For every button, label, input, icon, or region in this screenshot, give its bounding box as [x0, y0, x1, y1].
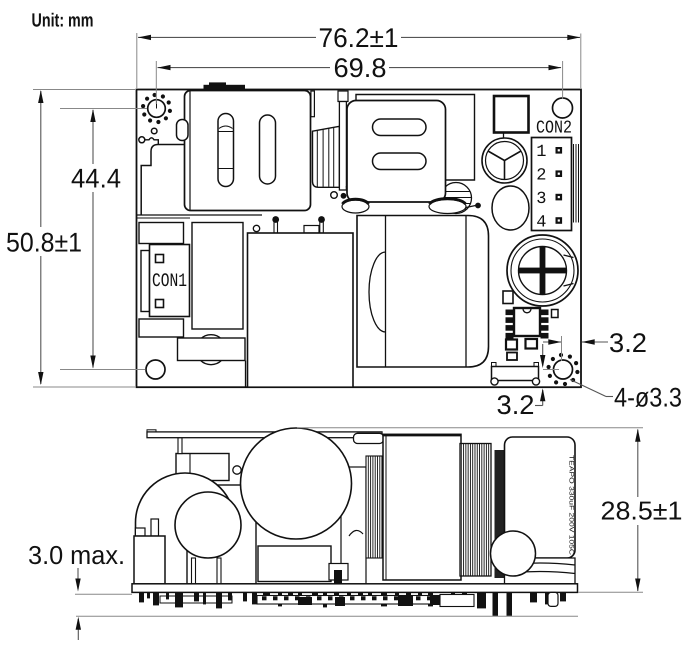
svg-text:3.0 max.: 3.0 max.: [28, 540, 125, 570]
svg-text:50.8±1: 50.8±1: [6, 228, 82, 258]
svg-text:TEAPO 330uF 200V 105C: TEAPO 330uF 200V 105C: [568, 455, 575, 555]
svg-text:2: 2: [536, 167, 546, 186]
svg-text:3.2: 3.2: [609, 328, 647, 358]
svg-text:69.8: 69.8: [334, 53, 387, 83]
svg-text:28.5±1: 28.5±1: [601, 496, 683, 526]
svg-text:1: 1: [536, 143, 546, 162]
svg-text:CON2: CON2: [536, 119, 572, 139]
svg-text:CON1: CON1: [152, 270, 187, 292]
svg-text:4: 4: [536, 213, 546, 232]
svg-text:44.4: 44.4: [71, 164, 121, 194]
svg-text:Unit: mm: Unit: mm: [32, 11, 94, 32]
svg-text:3: 3: [536, 190, 546, 209]
svg-text:3.2: 3.2: [497, 390, 535, 420]
svg-text:4-ø3.3: 4-ø3.3: [614, 383, 682, 413]
svg-text:76.2±1: 76.2±1: [319, 23, 399, 53]
